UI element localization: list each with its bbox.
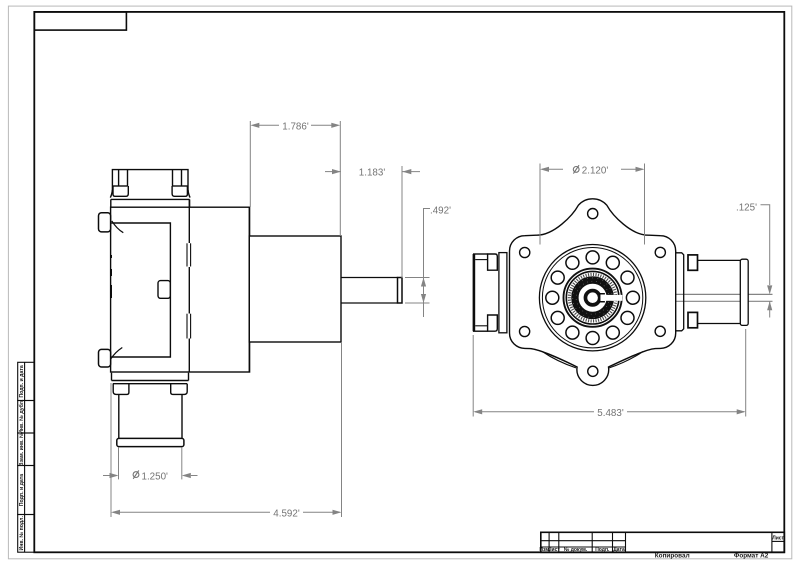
svg-text:Инв. № подл.: Инв. № подл. <box>19 516 25 551</box>
svg-text:№ докум.: № докум. <box>564 547 588 553</box>
svg-text:.492': .492' <box>430 205 451 216</box>
svg-text:Копировал: Копировал <box>655 553 690 560</box>
svg-text:.125': .125' <box>736 203 757 214</box>
svg-text:Подп.: Подп. <box>595 547 610 553</box>
svg-text:Подп. и дата: Подп. и дата <box>19 365 25 397</box>
svg-text:Взам. инв. №: Взам. инв. № <box>19 432 25 466</box>
svg-text:Лист: Лист <box>548 547 560 553</box>
svg-text:Дата: Дата <box>613 547 625 553</box>
svg-text:2.120': 2.120' <box>582 165 609 176</box>
svg-text:Инв. № дубл.: Инв. № дубл. <box>18 399 25 434</box>
svg-text:1.786': 1.786' <box>282 121 309 132</box>
svg-text:Формат А2: Формат А2 <box>734 553 769 560</box>
svg-text:1.250': 1.250' <box>142 472 169 483</box>
svg-text:5.483': 5.483' <box>597 408 624 419</box>
svg-text:Подп. и дата: Подп. и дата <box>19 474 25 506</box>
svg-text:1.183': 1.183' <box>359 168 386 179</box>
svg-text:4.592': 4.592' <box>273 508 300 519</box>
svg-text:Лист: Лист <box>772 535 784 541</box>
